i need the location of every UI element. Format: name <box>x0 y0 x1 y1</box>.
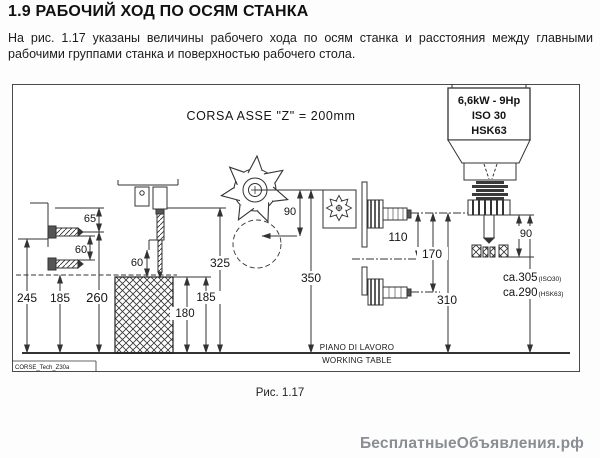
dim-310-label: 310 <box>437 293 457 307</box>
working-table-label-en: WORKING TABLE <box>322 356 392 365</box>
dim-245-label: 245 <box>17 291 37 305</box>
dim-185-left-label: 185 <box>50 291 70 305</box>
dim-180-label: 180 <box>175 308 194 320</box>
dim-110-label: 110 <box>388 230 407 244</box>
intro-line-1: На рис. 1.17 указаны величины рабочего х… <box>8 31 593 47</box>
dim-170-label: 170 <box>422 247 442 261</box>
working-table-label-it: PIANO DI LAVORO <box>320 343 395 352</box>
clearance-iso-sub: (ISO30) <box>539 276 562 283</box>
dim-185-right-label: 185 <box>196 292 215 304</box>
dim-60-mid-label: 60 <box>131 257 143 269</box>
drawing-code: CORSE_Tech_Z30a <box>15 365 70 371</box>
clearance-hsk-sub: (HSK63) <box>539 291 564 298</box>
spindle-power-label: 6,6kW - 9Hp <box>458 95 521 107</box>
machine-stroke-diagram: CORSA ASSE "Z" = 200mm PIANO DI LAVORO W… <box>12 84 580 372</box>
workpiece-block <box>115 277 173 353</box>
spindle-taper-iso-label: ISO 30 <box>472 110 506 122</box>
spindle-taper-hsk-label: HSK63 <box>471 125 506 137</box>
manual-page: 1.9 РАБОЧИЙ ХОД ПО ОСЯМ СТАНКА На рис. 1… <box>0 0 600 458</box>
dim-325-label: 325 <box>210 256 230 270</box>
figure-caption: Рис. 1.17 <box>200 387 360 399</box>
clearance-hsk-value: ca.290 <box>503 287 538 299</box>
watermark: БесплатныеОбъявления.рф <box>360 435 584 453</box>
dim-260-label: 260 <box>86 290 108 305</box>
dim-60-left-label: 60 <box>75 244 87 256</box>
intro-paragraph: На рис. 1.17 указаны величины рабочего х… <box>8 31 593 62</box>
section-heading: 1.9 РАБОЧИЙ ХОД ПО ОСЯМ СТАНКА <box>8 3 592 21</box>
dim-90-saw-label: 90 <box>284 206 296 218</box>
cutter-gear-icon <box>327 196 352 221</box>
corsa-z-title: CORSA ASSE "Z" = 200mm <box>186 109 355 123</box>
intro-line-2: рабочими группами станка и поверхностью … <box>8 47 593 63</box>
dim-90-spindle-label: 90 <box>520 228 532 240</box>
figure-1-17: CORSA ASSE "Z" = 200mm PIANO DI LAVORO W… <box>12 84 580 372</box>
cutter-head <box>472 245 508 257</box>
dim-350-label: 350 <box>301 271 321 285</box>
dim-65-label: 65 <box>84 213 96 225</box>
clearance-iso-value: ca.305 <box>503 272 538 284</box>
